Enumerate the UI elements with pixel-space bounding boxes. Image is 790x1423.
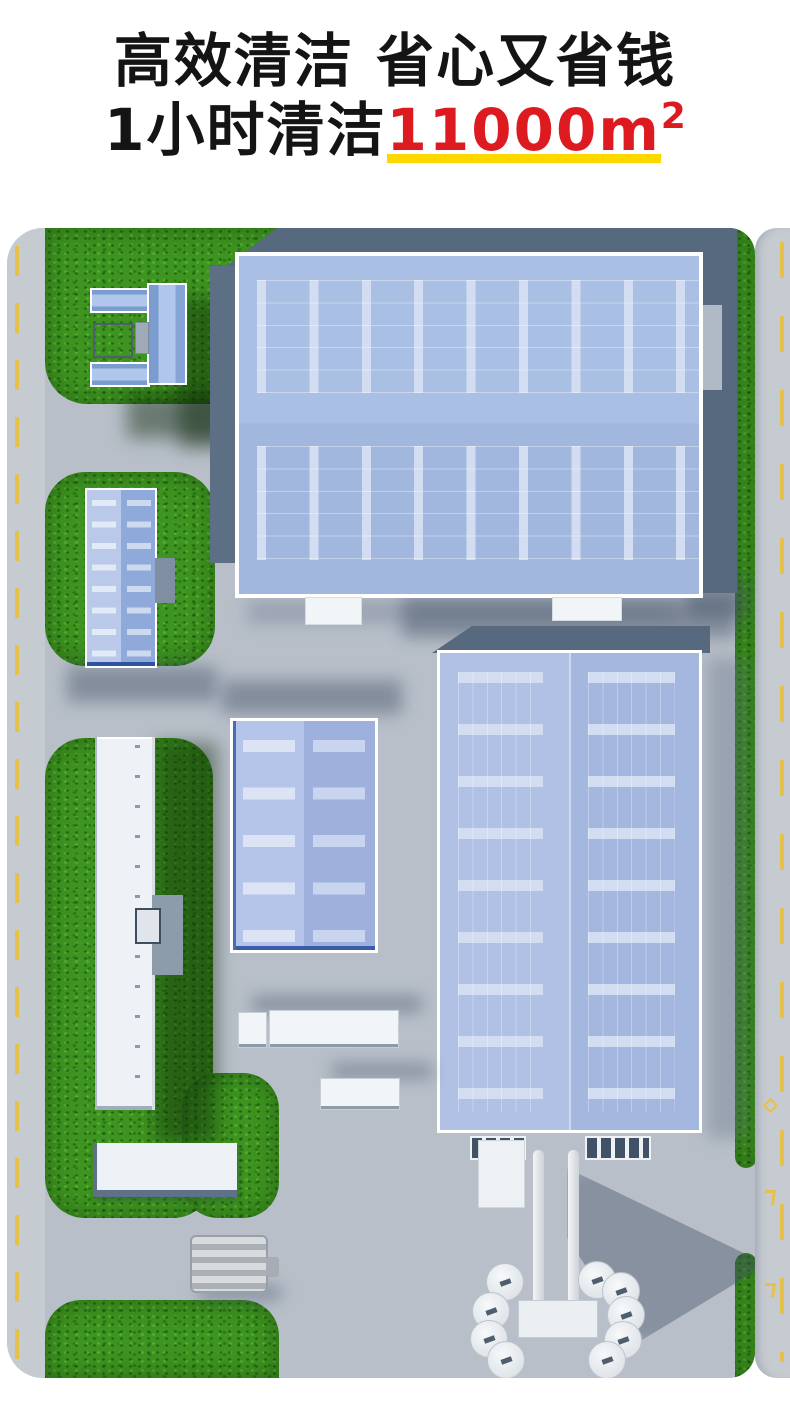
lane-dash-line xyxy=(15,246,19,1361)
skylight-column xyxy=(313,740,365,944)
headline-line1: 高效清洁 省心又省钱 xyxy=(0,28,790,94)
warehouse-large-bottom-roof xyxy=(437,650,702,1133)
workshop-small-roof xyxy=(85,488,157,668)
left-road xyxy=(7,228,45,1378)
building-shadow xyxy=(222,680,402,714)
turn-arrow-marking xyxy=(763,1190,776,1205)
entrance-canopy xyxy=(305,597,362,625)
building-shadow xyxy=(707,658,747,1138)
road-diamond-marking xyxy=(763,1098,779,1114)
courtyard xyxy=(93,323,133,358)
right-road xyxy=(755,228,790,1378)
workshop-mid-roof xyxy=(230,718,378,953)
product-banner: 高效清洁 省心又省钱 1小时清洁11000m2 xyxy=(0,0,790,1423)
storage-flat-building xyxy=(93,1143,237,1197)
skylight-band xyxy=(257,446,702,560)
headline-line2: 1小时清洁11000m2 xyxy=(0,97,790,172)
underlined-value: 11000m xyxy=(387,101,661,163)
building-shadow xyxy=(67,666,217,702)
tower-mast xyxy=(568,1150,579,1310)
skylight-band xyxy=(257,280,702,393)
concrete-pad xyxy=(478,1140,525,1208)
tower-mast xyxy=(533,1150,544,1310)
office-wing-north xyxy=(90,288,150,313)
skylight-band xyxy=(458,672,543,1112)
tower-base xyxy=(518,1300,598,1338)
warehouse-bottom-wall xyxy=(432,626,710,653)
entrance-canopy xyxy=(552,597,622,621)
tank-cylinder xyxy=(487,1341,525,1378)
courtyard-structure xyxy=(135,322,149,354)
truck-trailer xyxy=(269,1010,399,1048)
truck-shadow xyxy=(332,1064,432,1078)
turn-arrow-marking xyxy=(763,1283,776,1298)
workshop-annex xyxy=(155,558,175,603)
skylight-column xyxy=(243,740,295,944)
warehouse-large-top-roof xyxy=(235,252,703,598)
skylight-column xyxy=(92,500,116,660)
headline-area-value: 11000m2 xyxy=(387,96,686,164)
tank-cylinder xyxy=(588,1341,626,1378)
roof-ridge xyxy=(569,653,571,1130)
office-wing-south xyxy=(90,362,150,387)
headline: 高效清洁 省心又省钱 1小时清洁11000m2 xyxy=(0,28,790,172)
grass-patch xyxy=(45,1300,279,1378)
truck-trailer xyxy=(320,1078,400,1110)
sweeper-machine xyxy=(190,1235,268,1293)
office-wing-east xyxy=(147,283,187,385)
skylight-band xyxy=(588,672,675,1112)
loading-dock xyxy=(585,1136,651,1160)
skylight-column xyxy=(127,500,151,660)
truck-cab xyxy=(238,1012,267,1048)
lane-dash-line xyxy=(780,242,784,1362)
rooftop-unit xyxy=(135,908,161,944)
warehouse-left-wall xyxy=(210,266,235,563)
industrial-park-aerial-view xyxy=(7,228,755,1378)
headline-line2-prefix: 1小时清洁 xyxy=(104,96,386,164)
square-superscript: 2 xyxy=(661,96,686,137)
